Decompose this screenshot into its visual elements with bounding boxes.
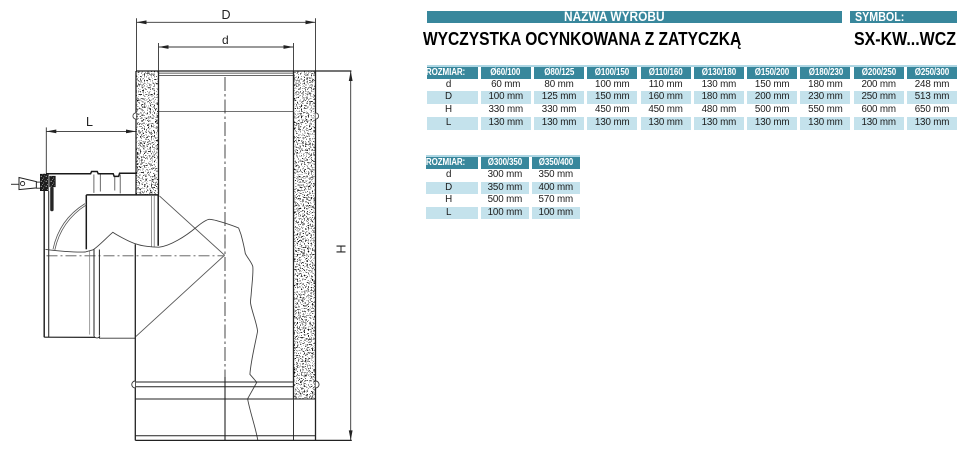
svg-text:D: D: [222, 8, 231, 22]
svg-text:L: L: [86, 115, 93, 129]
svg-text:H: H: [335, 244, 349, 253]
svg-text:d: d: [222, 33, 229, 47]
